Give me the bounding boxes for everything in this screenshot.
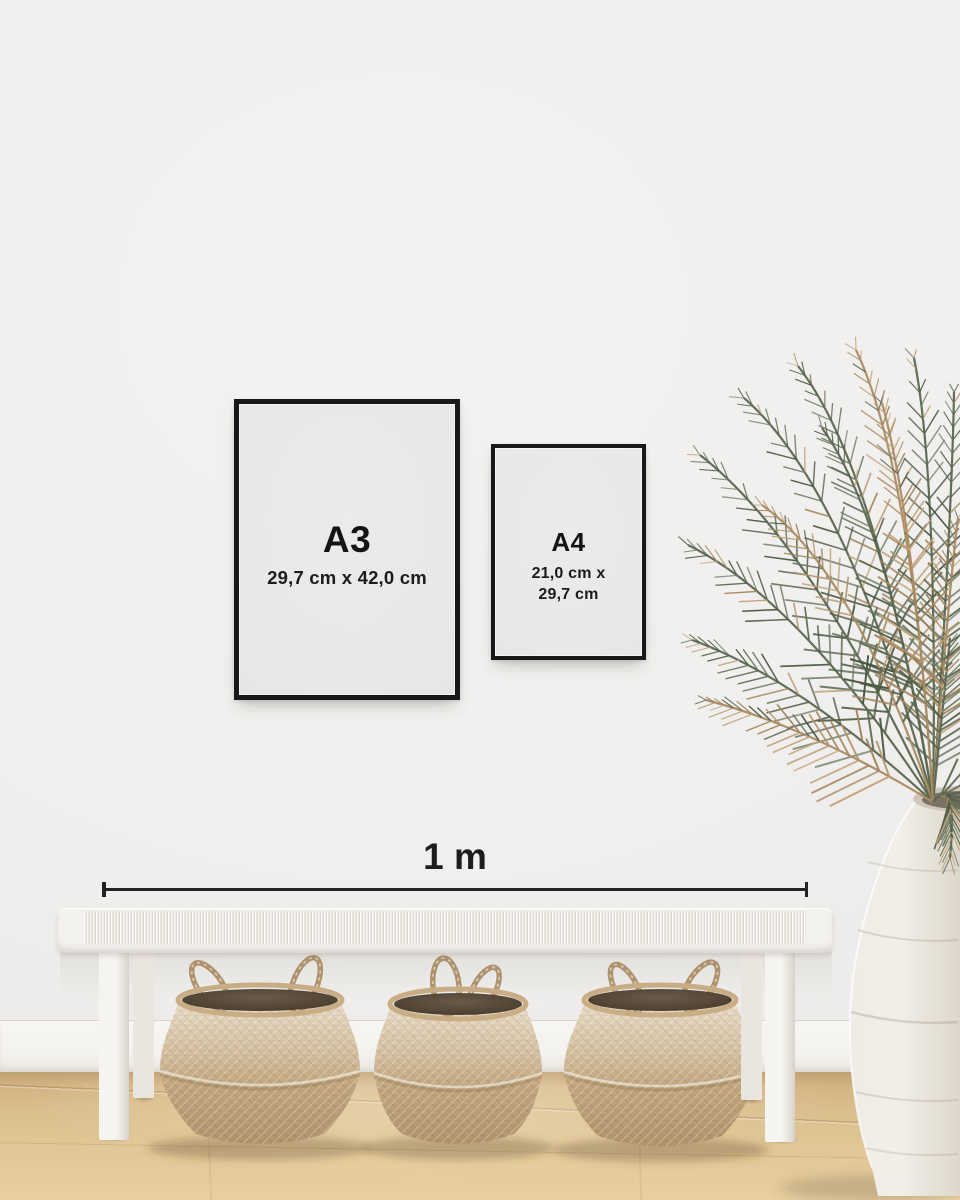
bench-woven-top xyxy=(84,911,806,944)
scale-label: 1 m xyxy=(102,838,808,875)
a3-size-label: A3 xyxy=(323,521,371,558)
a4-frame: A4 21,0 cm x 29,7 cm xyxy=(491,444,646,660)
a3-poster-paper: A3 29,7 cm x 42,0 cm xyxy=(239,404,455,695)
a4-dimensions: 21,0 cm x 29,7 cm xyxy=(532,564,606,606)
scale-line xyxy=(102,888,808,891)
a4-poster-content: A4 21,0 cm x 29,7 cm xyxy=(532,529,606,606)
bench-seat xyxy=(58,908,832,953)
a4-poster-paper: A4 21,0 cm x 29,7 cm xyxy=(495,448,642,656)
a4-dimensions-line: 21,0 cm x xyxy=(532,564,606,585)
a4-dimensions-line: 29,7 cm xyxy=(532,585,606,606)
a3-dimensions: 29,7 cm x 42,0 cm xyxy=(267,567,427,589)
room-scene: 1 m A3 29,7 cm x 42,0 cm A4 21,0 cm x 29… xyxy=(0,0,960,1200)
bench-rear-right-leg xyxy=(741,950,762,1100)
bench-front-left-leg xyxy=(99,950,129,1140)
a3-dimensions-line: 29,7 cm x 42,0 cm xyxy=(267,567,427,589)
a3-frame: A3 29,7 cm x 42,0 cm xyxy=(234,399,460,700)
a4-size-label: A4 xyxy=(551,529,585,555)
scale-bar: 1 m xyxy=(102,838,808,900)
a3-poster-content: A3 29,7 cm x 42,0 cm xyxy=(267,521,427,589)
bench-wall-shadow xyxy=(60,952,832,1007)
bench-rear-left-leg xyxy=(133,950,154,1098)
scale-cap-right xyxy=(805,882,809,897)
scale-cap-left xyxy=(102,882,106,897)
bench-front-right-leg xyxy=(765,950,795,1142)
